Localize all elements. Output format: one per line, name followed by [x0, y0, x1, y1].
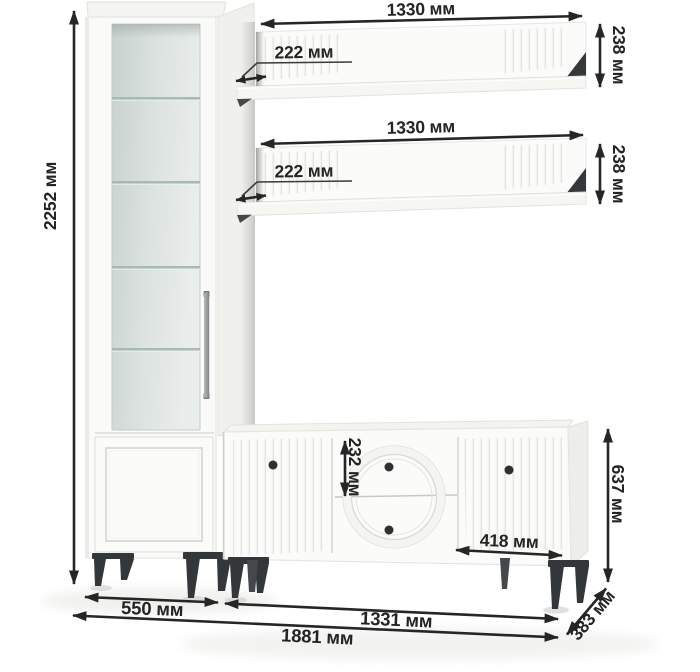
dim-shelf-bottom-height: 238 мм: [600, 144, 629, 204]
dimension-label: 637 мм: [608, 465, 628, 524]
dim-total-height: 2252 мм: [40, 11, 74, 584]
dim-drawer-height: 232 мм: [345, 438, 365, 497]
cabinet-top-face: [87, 2, 226, 17]
glass-door: [112, 24, 210, 430]
wall-shelf-top: [237, 22, 586, 107]
dimension-label: 1330 мм: [386, 0, 455, 20]
furniture-dimension-diagram: 2252 мм 1330 мм 238 мм 222 мм 1330 мм 23…: [0, 0, 700, 672]
left-door-knob: [269, 461, 278, 470]
bottom-drawer-knob: [385, 526, 394, 535]
dimension-label: 550 мм: [121, 597, 184, 620]
dimension-label: 222 мм: [274, 41, 333, 62]
cabinet-bottom-door: [95, 437, 213, 552]
floor-shadows: [42, 585, 660, 660]
side-panel-shadow: [241, 22, 255, 432]
dimension-label: 232 мм: [345, 438, 365, 497]
dim-stand-width: 1331 мм: [225, 604, 558, 632]
dimension-label: 2252 мм: [40, 162, 60, 230]
dim-shelf-top-height: 238 мм: [600, 24, 629, 87]
cabinet-left-edge: [85, 17, 89, 558]
right-door-knob: [505, 466, 514, 475]
dimension-label: 222 мм: [274, 160, 333, 181]
dim-stand-height: 637 мм: [608, 429, 628, 582]
dimension-label: 418 мм: [479, 530, 538, 552]
dimension-label: 1330 мм: [386, 116, 455, 138]
dim-shelf-top-width: 1330 мм: [261, 0, 582, 24]
top-drawer-knob: [385, 463, 394, 472]
stand-left-door-grooves: [233, 438, 328, 556]
door-handle: [204, 291, 210, 399]
dimension-label: 238 мм: [609, 26, 629, 85]
dimension-label: 238 мм: [609, 145, 629, 204]
diagram-canvas: 2252 мм 1330 мм 238 мм 222 мм 1330 мм 23…: [0, 0, 700, 672]
dimension-label: 1881 мм: [281, 624, 354, 648]
tv-stand: [224, 420, 590, 609]
